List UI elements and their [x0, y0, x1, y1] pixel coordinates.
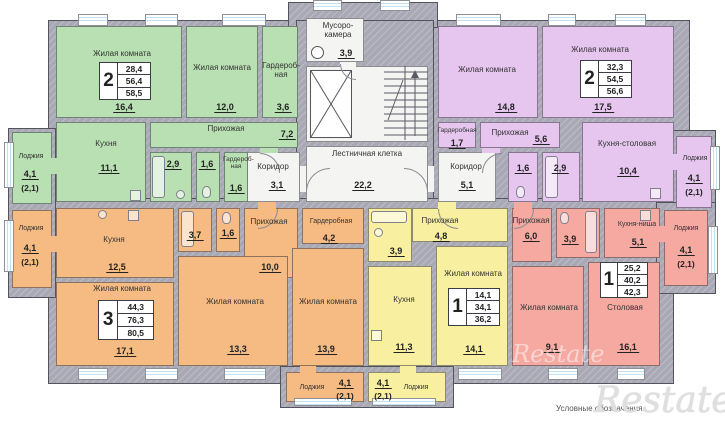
room-area: 5,1 — [630, 237, 647, 248]
room-name: Кухня-ниша — [618, 221, 656, 229]
room-area: 6,0 — [523, 231, 540, 242]
window — [380, 0, 410, 11]
room-name-loggia: Лоджия — [19, 153, 44, 161]
toilet-icon — [222, 212, 231, 224]
room-area: 3,9 — [338, 48, 355, 59]
apartment-badge-pink: 1 25,2 40,2 42,3 — [600, 262, 648, 298]
room-area: 22,2 — [352, 180, 374, 191]
room-name-loggia: Лоджия — [683, 155, 708, 163]
room-area: 17,1 — [114, 346, 136, 357]
door-opening — [482, 148, 500, 153]
watermark-center: Restate — [512, 340, 604, 368]
room-area: 5,1 — [459, 180, 476, 191]
badge-areas: 44,3 76,3 80,5 — [118, 301, 153, 339]
window — [615, 14, 646, 26]
room-name-loggia: Лоджия — [300, 384, 325, 392]
room-name: Жилая комната — [520, 304, 578, 313]
room-area: 1,6 — [228, 183, 245, 194]
pink-kitchen-niche — [604, 208, 660, 258]
total-area: 36,2 — [467, 314, 499, 325]
room-area: 16,1 — [617, 342, 639, 353]
bathtub-icon — [585, 211, 597, 253]
stove-icon — [640, 210, 651, 221]
toilet-icon — [560, 212, 569, 224]
room-name: Прихожая — [512, 217, 549, 226]
window — [4, 142, 14, 188]
room-area: 1,6 — [199, 159, 216, 170]
loggia-coef: (2,1) — [374, 391, 391, 401]
purple-loggia — [676, 136, 712, 208]
balcony-door-opening — [670, 154, 678, 170]
room-name-loggia: Лоджия — [674, 225, 699, 233]
room-name: Прихожая — [207, 125, 244, 134]
room-area: 4,1 — [686, 173, 703, 184]
room-area: 4,1 — [678, 245, 695, 256]
room-name-loggia: Лоджия — [19, 225, 44, 233]
window — [78, 368, 108, 380]
total-area: 80,5 — [118, 327, 153, 339]
usable-area: 40,2 — [618, 275, 647, 287]
rooms-count: 2 — [100, 63, 118, 99]
room-name-corridor: Коридор — [257, 163, 289, 172]
usable-area: 76,3 — [118, 314, 153, 327]
living-area: 32,3 — [599, 61, 631, 73]
apartment-badge-purple: 2 32,3 54,5 56,6 — [580, 60, 632, 98]
badge-areas: 25,2 40,2 42,3 — [618, 263, 647, 297]
rooms-count: 1 — [601, 263, 618, 297]
room-name: Прихожая — [491, 129, 528, 138]
room-area: 1,6 — [220, 228, 237, 239]
room-area: 2,9 — [552, 163, 569, 174]
stove-icon — [130, 190, 141, 201]
sink-icon — [176, 190, 185, 199]
window — [548, 368, 578, 380]
living-area: 14,1 — [467, 289, 499, 301]
room-area: 11,3 — [393, 342, 414, 353]
room-area: 17,5 — [592, 102, 614, 113]
window — [145, 14, 178, 26]
room-area: 7,2 — [279, 129, 296, 140]
room-area: 4,1 — [337, 378, 354, 389]
room-name: Гардеробная — [310, 218, 352, 226]
room-area: 4,8 — [433, 231, 450, 242]
door-opening — [258, 202, 276, 209]
balcony-door-opening — [48, 158, 57, 174]
badge-areas: 14,1 34,1 36,2 — [467, 289, 499, 325]
room-area: 5,6 — [533, 134, 550, 145]
rooms-count: 1 — [449, 289, 467, 325]
loggia-coef: (2,1) — [685, 187, 702, 197]
room-name: Кухня — [393, 296, 414, 305]
watermark-brand: Restate — [594, 380, 725, 421]
room-area: 4,1 — [22, 243, 39, 254]
room-name-trash: Мусоро-камера — [311, 22, 365, 40]
room-area: 11,1 — [98, 163, 119, 174]
room-name-loggia: Лоджия — [404, 384, 429, 392]
room-name: Жилая комната — [93, 285, 151, 294]
balcony-door-opening — [300, 366, 316, 373]
apartment-badge-yellow: 1 14,1 34,1 36,2 — [448, 288, 500, 326]
room-area: 13,3 — [227, 344, 249, 355]
living-area: 28,4 — [118, 63, 150, 75]
room-name-corridor: Коридор — [450, 163, 482, 172]
room-area: 13,9 — [315, 344, 337, 355]
room-area: 3,7 — [187, 230, 204, 241]
stove-icon — [650, 188, 661, 199]
window — [313, 0, 342, 11]
door-opening — [300, 166, 306, 192]
green-loggia — [12, 132, 52, 204]
toilet-icon — [516, 186, 525, 198]
room-area: 12,5 — [106, 262, 128, 273]
room-area: 10,4 — [617, 166, 639, 177]
stairs-icon — [384, 66, 428, 140]
elevator-icon — [310, 70, 352, 138]
apartment-badge-green: 2 28,4 56,4 58,5 — [99, 62, 151, 100]
room-name: Гардероб-ная — [223, 156, 249, 171]
room-area: 14,1 — [463, 344, 485, 355]
sink-icon — [374, 228, 383, 237]
balcony-door-opening — [48, 236, 57, 252]
total-area: 42,3 — [618, 286, 647, 297]
room-name: Жилая комната — [206, 298, 264, 307]
room-area: 16,4 — [113, 102, 135, 113]
room-name: Прихожая — [421, 217, 458, 226]
room-name: Жилая комната — [571, 46, 629, 55]
usable-area: 34,1 — [467, 301, 499, 313]
window — [710, 146, 720, 190]
door-opening — [514, 202, 532, 209]
window — [708, 226, 718, 274]
room-name: Жилая комната — [93, 50, 151, 59]
sink-icon — [98, 210, 107, 219]
window — [456, 14, 501, 26]
room-name: Жилая комната — [458, 66, 516, 75]
loggia-coef: (2,1) — [21, 183, 38, 193]
room-area: 1,6 — [515, 163, 532, 174]
living-area: 25,2 — [618, 263, 647, 275]
window — [78, 14, 108, 26]
apartment-badge-orange: 3 44,3 76,3 80,5 — [98, 300, 154, 340]
room-name: Жилая комната — [193, 64, 251, 73]
room-name-stairwell: Лестничная клетка — [330, 150, 404, 159]
room-area: 4,1 — [375, 378, 392, 389]
floor-plan: Мусоро-камера 3,9 Лестничная клетка 22,2… — [0, 0, 725, 423]
total-area: 58,5 — [118, 88, 150, 99]
window — [548, 14, 576, 26]
room-name: Кухня-столовая — [598, 140, 656, 149]
room-name: Гардеробная — [437, 127, 476, 134]
loggia-coef: (2,1) — [336, 391, 353, 401]
room-area: 3,6 — [275, 102, 292, 113]
room-area: 2,9 — [165, 159, 182, 170]
window — [4, 220, 14, 272]
room-name: Кухня — [95, 140, 116, 149]
room-area: 3,1 — [269, 180, 286, 191]
badge-areas: 28,4 56,4 58,5 — [118, 63, 150, 99]
room-name: Жилая комната — [299, 298, 357, 307]
room-area: 1,7 — [449, 138, 466, 149]
usable-area: 56,4 — [118, 75, 150, 87]
room-name: Жилая комната — [444, 270, 502, 279]
bathtub-icon — [181, 211, 194, 247]
rooms-count: 2 — [581, 61, 599, 97]
room-name: Гардероб-ная — [262, 62, 300, 80]
loggia-coef: (2,1) — [677, 259, 694, 269]
room-area: 4,1 — [22, 169, 39, 180]
window — [224, 368, 266, 380]
room-name: Кухня — [103, 236, 124, 245]
window — [458, 368, 502, 380]
stove-icon — [371, 330, 382, 341]
loggia-coef: (2,1) — [21, 257, 38, 267]
rooms-count: 3 — [99, 301, 118, 339]
room-area: 4,2 — [321, 233, 338, 244]
living-area: 44,3 — [118, 301, 153, 314]
trash-chute-icon — [311, 46, 324, 59]
room-area: 3,9 — [388, 246, 405, 257]
window — [222, 14, 266, 26]
total-area: 56,6 — [599, 86, 631, 97]
stove-icon — [128, 210, 139, 221]
bathtub-icon — [371, 211, 407, 223]
badge-areas: 32,3 54,5 56,6 — [599, 61, 631, 97]
balcony-door-opening — [658, 226, 666, 242]
room-area: 3,9 — [562, 234, 579, 245]
room-area: 12,0 — [214, 102, 236, 113]
door-opening — [438, 202, 456, 209]
window — [145, 368, 178, 380]
usable-area: 54,5 — [599, 73, 631, 85]
room-area: 14,8 — [495, 102, 517, 113]
room-name: Прихожая — [250, 218, 287, 227]
elevator-x-icon — [311, 71, 351, 137]
bathtub-icon — [152, 156, 165, 198]
room-name: Столовая — [607, 304, 643, 313]
window — [617, 368, 645, 380]
room-area: 10,0 — [259, 262, 281, 273]
balcony-door-opening — [400, 366, 416, 373]
door-opening — [428, 166, 434, 192]
toilet-icon — [202, 186, 211, 198]
